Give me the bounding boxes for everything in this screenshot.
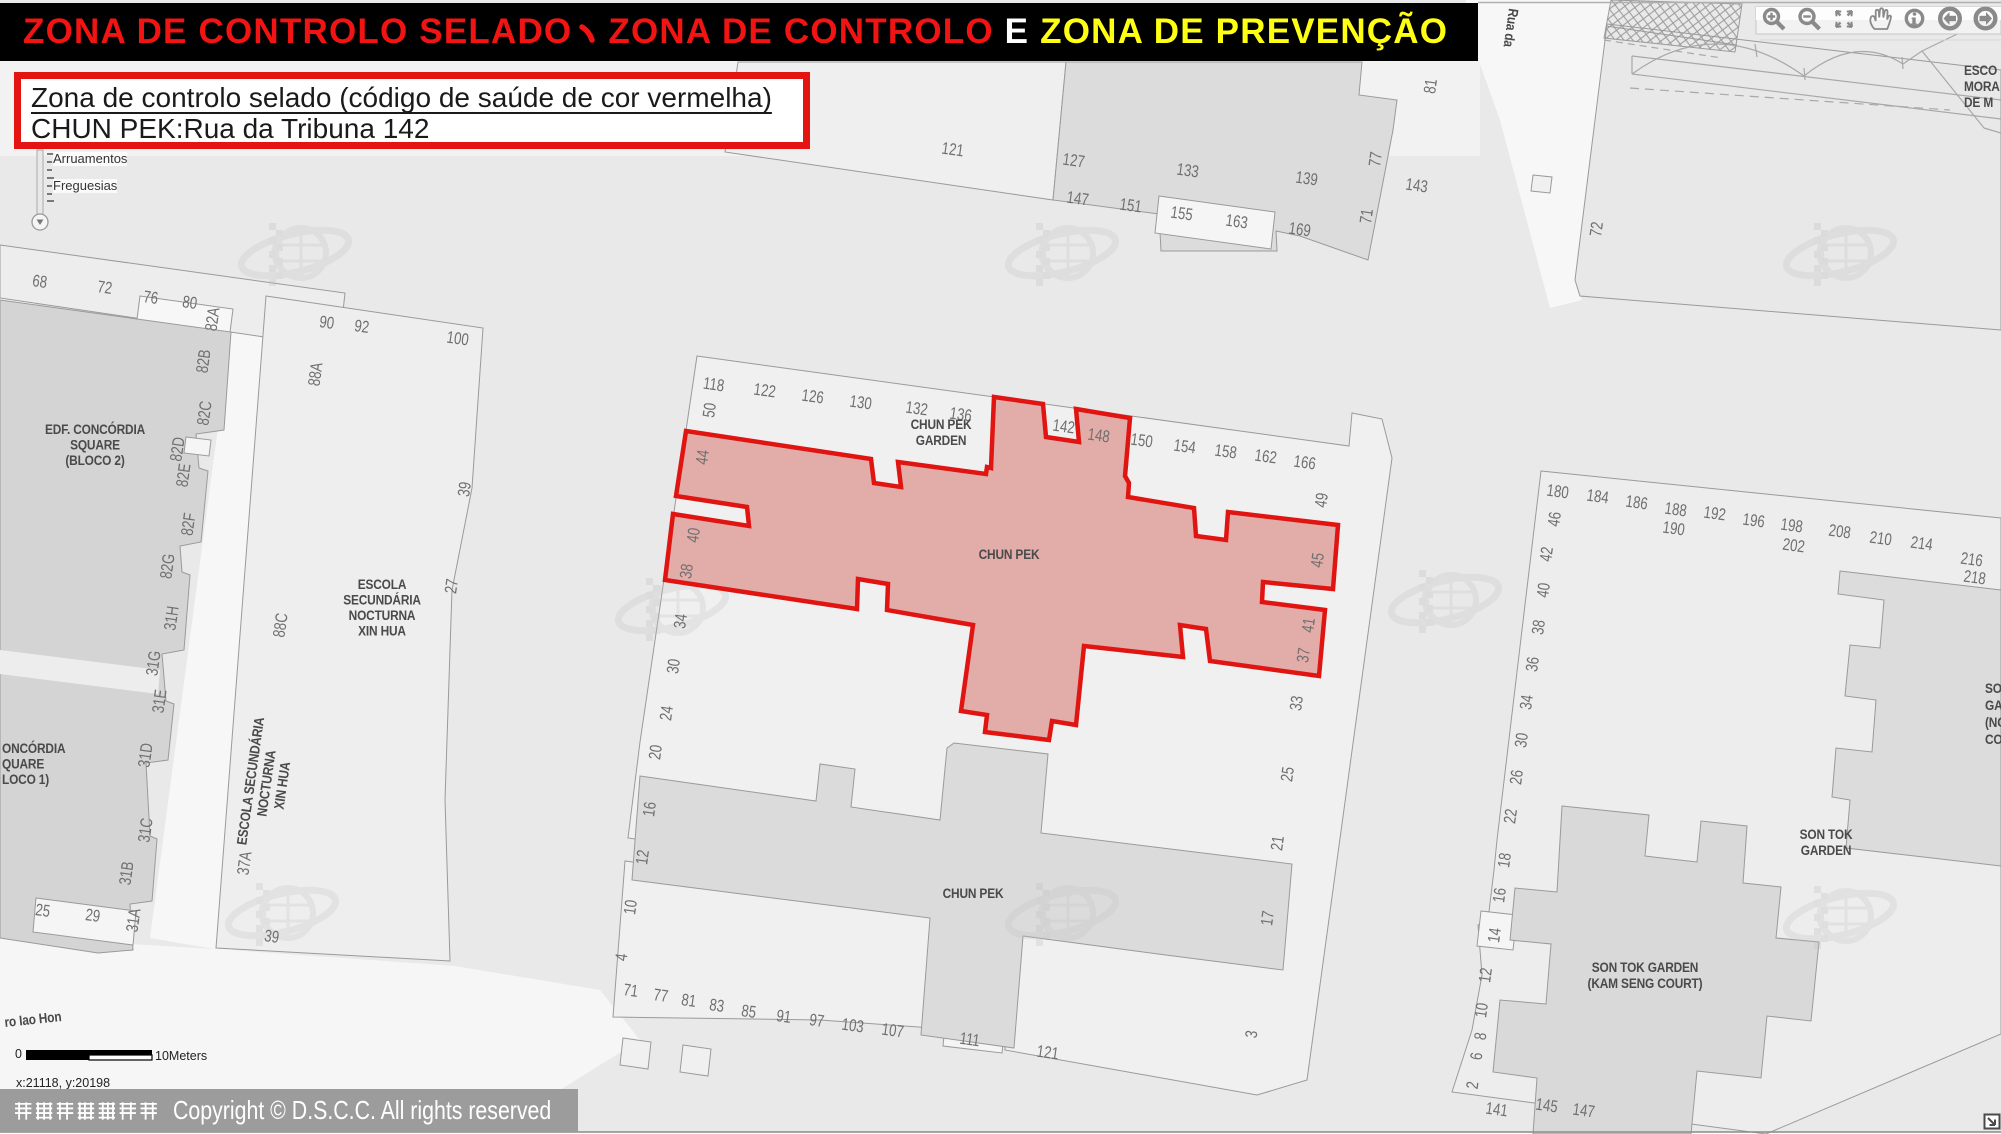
svg-text:ESCO: ESCO: [1964, 62, 1997, 78]
svg-text:72: 72: [1587, 221, 1608, 238]
svg-text:103: 103: [840, 1015, 865, 1037]
svg-text:196: 196: [1741, 510, 1766, 532]
svg-text:208: 208: [1827, 521, 1852, 543]
svg-text:151: 151: [1118, 195, 1143, 217]
svg-text:26: 26: [1507, 769, 1528, 786]
svg-text:92: 92: [353, 317, 370, 338]
svg-text:25: 25: [1278, 766, 1299, 783]
svg-text:100: 100: [445, 328, 470, 350]
svg-text:SON TOK GARDEN: SON TOK GARDEN: [1592, 959, 1698, 975]
svg-text:91: 91: [775, 1007, 792, 1028]
svg-text:37: 37: [1294, 647, 1315, 664]
svg-text:CHUN PEK: CHUN PEK: [943, 885, 1004, 901]
svg-text:80: 80: [181, 293, 198, 314]
svg-text:(NGA: (NGA: [1985, 714, 2001, 730]
svg-text:GA: GA: [1985, 697, 2001, 713]
svg-text:111: 111: [958, 1029, 981, 1051]
svg-text:30: 30: [664, 658, 685, 675]
svg-text:107: 107: [880, 1020, 905, 1042]
svg-text:85: 85: [740, 1002, 757, 1023]
svg-text:SQUARE: SQUARE: [70, 437, 120, 453]
svg-text:25: 25: [34, 901, 51, 922]
svg-text:18: 18: [1495, 852, 1516, 869]
svg-text:16: 16: [1490, 887, 1511, 904]
svg-text:154: 154: [1172, 436, 1197, 458]
svg-text:17: 17: [1258, 910, 1279, 927]
svg-text:30: 30: [1512, 732, 1533, 749]
svg-text:MORA: MORA: [1964, 78, 2000, 94]
svg-text:130: 130: [848, 392, 873, 414]
svg-text:77: 77: [1366, 151, 1387, 168]
svg-text:EDF. CONCÓRDIA: EDF. CONCÓRDIA: [45, 421, 146, 437]
svg-text:82C: 82C: [194, 400, 216, 427]
svg-text:XIN HUA: XIN HUA: [358, 623, 406, 639]
svg-text:NOCTURNA: NOCTURNA: [349, 607, 416, 623]
svg-text:90: 90: [318, 313, 335, 334]
svg-text:150: 150: [1129, 430, 1154, 452]
svg-text:122: 122: [752, 380, 777, 402]
svg-text:148: 148: [1086, 425, 1111, 447]
svg-text:36: 36: [1523, 656, 1544, 673]
svg-text:81: 81: [680, 991, 697, 1012]
svg-text:QUARE: QUARE: [2, 756, 45, 772]
svg-text:83: 83: [708, 996, 725, 1017]
svg-text:158: 158: [1213, 441, 1238, 463]
svg-text:39: 39: [455, 481, 476, 498]
svg-text:31E: 31E: [149, 688, 171, 714]
svg-text:45: 45: [1308, 552, 1329, 569]
svg-text:82G: 82G: [157, 553, 179, 580]
svg-text:82A: 82A: [202, 306, 224, 333]
svg-text:82B: 82B: [193, 348, 215, 374]
svg-text:88A: 88A: [305, 361, 327, 388]
svg-text:37A: 37A: [234, 850, 256, 877]
svg-text:127: 127: [1061, 150, 1086, 172]
svg-text:CHUN PEK: CHUN PEK: [911, 416, 972, 432]
svg-text:218: 218: [1962, 567, 1987, 589]
svg-text:198: 198: [1779, 515, 1804, 537]
svg-text:SO: SO: [1985, 680, 2001, 696]
svg-text:39: 39: [263, 927, 280, 948]
svg-text:77: 77: [652, 986, 669, 1007]
svg-text:(BLOCO 2): (BLOCO 2): [65, 452, 124, 468]
svg-text:81: 81: [1421, 78, 1442, 95]
svg-text:33: 33: [1287, 695, 1308, 712]
svg-text:133: 133: [1175, 160, 1200, 182]
svg-text:82F: 82F: [178, 512, 200, 537]
svg-text:ONCÓRDIA: ONCÓRDIA: [2, 740, 66, 756]
svg-text:22: 22: [1501, 808, 1522, 825]
svg-text:145: 145: [1534, 1095, 1559, 1117]
svg-text:41: 41: [1299, 617, 1320, 634]
svg-text:31B: 31B: [116, 860, 138, 886]
svg-text:139: 139: [1294, 168, 1319, 190]
svg-text:SECUNDÁRIA: SECUNDÁRIA: [343, 592, 421, 608]
svg-text:CHUN PEK: CHUN PEK: [979, 546, 1040, 562]
svg-text:147: 147: [1065, 188, 1090, 210]
svg-text:184: 184: [1585, 486, 1610, 508]
svg-text:GARDEN: GARDEN: [916, 432, 967, 448]
svg-text:ESCOLA: ESCOLA: [358, 576, 407, 592]
svg-text:169: 169: [1287, 219, 1312, 241]
svg-text:31A: 31A: [123, 907, 145, 934]
svg-text:21: 21: [1268, 835, 1289, 852]
svg-text:(KAM SENG COURT): (KAM SENG COURT): [1588, 975, 1703, 991]
svg-text:82E: 82E: [173, 462, 195, 488]
svg-text:40: 40: [684, 527, 705, 544]
svg-text:202: 202: [1781, 535, 1806, 557]
svg-text:155: 155: [1169, 203, 1194, 225]
svg-text:88C: 88C: [270, 612, 292, 639]
svg-text:31G: 31G: [143, 650, 165, 677]
svg-text:82D: 82D: [167, 436, 189, 463]
svg-text:192: 192: [1702, 503, 1727, 525]
svg-text:142: 142: [1051, 416, 1076, 438]
svg-text:163: 163: [1224, 211, 1249, 233]
svg-text:31H: 31H: [161, 605, 183, 632]
svg-text:214: 214: [1909, 533, 1934, 555]
svg-text:50: 50: [700, 402, 721, 419]
svg-text:LOCO 1): LOCO 1): [2, 771, 49, 787]
svg-text:31D: 31D: [135, 742, 157, 769]
svg-text:76: 76: [142, 288, 159, 309]
svg-text:147: 147: [1571, 1100, 1596, 1122]
svg-text:166: 166: [1292, 452, 1317, 474]
svg-text:121: 121: [1035, 1042, 1060, 1064]
svg-text:141: 141: [1484, 1099, 1509, 1121]
svg-text:38: 38: [677, 563, 698, 580]
svg-text:42: 42: [1537, 546, 1558, 563]
svg-text:71: 71: [622, 981, 639, 1002]
svg-text:40: 40: [1534, 582, 1555, 599]
svg-text:186: 186: [1624, 492, 1649, 514]
svg-text:143: 143: [1404, 175, 1429, 197]
svg-text:118: 118: [702, 374, 726, 396]
svg-text:126: 126: [800, 386, 825, 408]
svg-text:121: 121: [940, 139, 965, 161]
svg-text:CO: CO: [1985, 731, 2001, 747]
svg-text:180: 180: [1545, 481, 1570, 503]
svg-text:GARDEN: GARDEN: [1801, 842, 1852, 858]
svg-text:31C: 31C: [135, 817, 157, 844]
svg-text:72: 72: [96, 278, 113, 299]
svg-text:190: 190: [1661, 518, 1686, 540]
svg-text:210: 210: [1868, 528, 1893, 550]
svg-text:29: 29: [84, 906, 101, 927]
svg-text:DE M: DE M: [1964, 94, 1993, 110]
svg-text:12: 12: [1476, 967, 1497, 984]
svg-text:68: 68: [31, 272, 48, 293]
svg-text:46: 46: [1545, 511, 1566, 528]
svg-text:SON TOK: SON TOK: [1800, 826, 1854, 842]
svg-text:12: 12: [633, 849, 654, 866]
svg-text:162: 162: [1253, 446, 1278, 468]
svg-text:49: 49: [1312, 492, 1333, 509]
svg-text:38: 38: [1529, 619, 1550, 636]
svg-text:20: 20: [646, 744, 667, 761]
svg-text:97: 97: [808, 1011, 825, 1032]
svg-text:16: 16: [640, 801, 661, 818]
svg-text:27: 27: [442, 578, 463, 595]
svg-text:10: 10: [621, 899, 642, 916]
svg-text:71: 71: [1357, 208, 1378, 225]
svg-text:10: 10: [1472, 1002, 1493, 1019]
